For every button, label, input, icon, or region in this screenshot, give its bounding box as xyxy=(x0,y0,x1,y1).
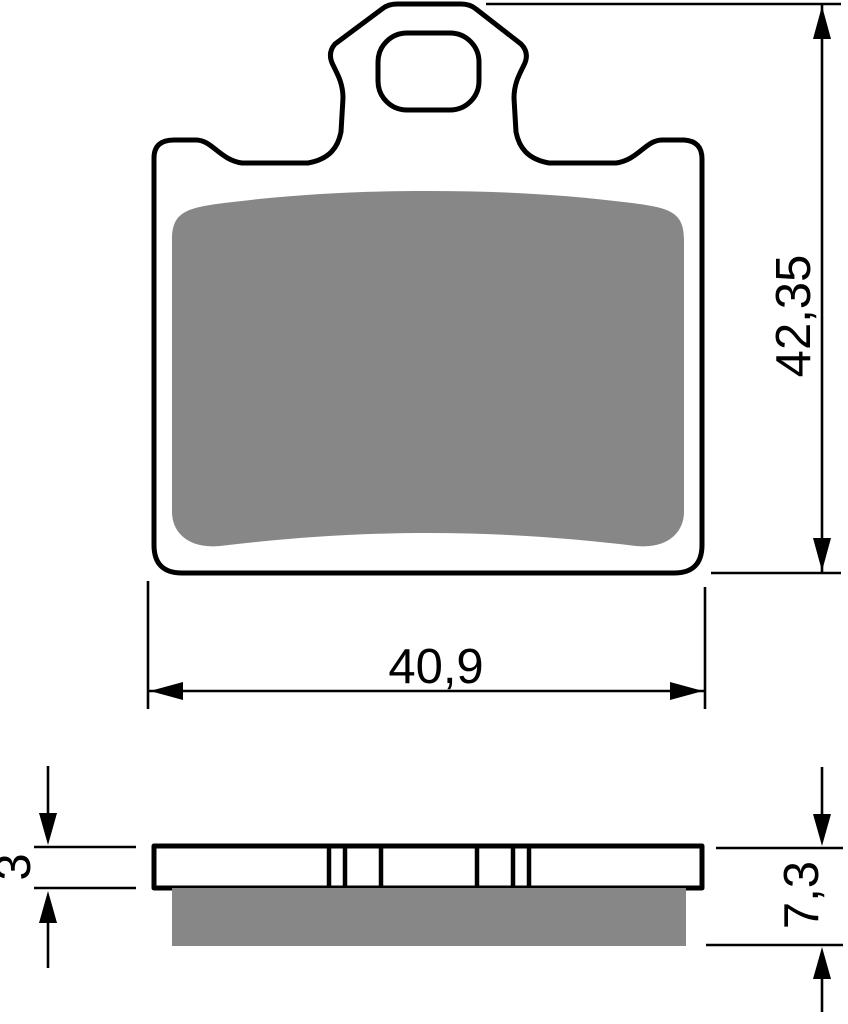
arrow-right-icon xyxy=(670,682,703,700)
dim-total-thickness-label: 7,3 xyxy=(775,861,829,929)
dim-pad-width: 40,9 xyxy=(148,581,705,709)
brake-pad-technical-drawing: 42,35 40,9 xyxy=(0,0,848,1024)
dim-backplate-thickness-label: 3 xyxy=(0,853,41,880)
front-view xyxy=(154,4,702,573)
pad-mounting-hole xyxy=(378,33,479,110)
technical-drawing-page: 42,35 40,9 xyxy=(0,0,848,1024)
dim-backplate-thickness: 3 xyxy=(0,766,136,968)
arrow-down-icon xyxy=(813,814,831,846)
dim-pad-width-label: 40,9 xyxy=(388,640,483,694)
arrow-down-icon xyxy=(39,813,57,845)
arrow-up-icon xyxy=(813,6,831,39)
side-view xyxy=(154,846,702,946)
friction-material-front xyxy=(172,191,684,546)
arrow-up-icon xyxy=(813,947,831,979)
arrow-left-icon xyxy=(150,682,183,700)
arrow-up-icon xyxy=(39,891,57,923)
backplate-side xyxy=(154,846,702,888)
friction-material-side xyxy=(172,888,686,946)
arrow-down-icon xyxy=(813,538,831,571)
dim-total-thickness: 7,3 xyxy=(706,767,843,1012)
dim-pad-height-label: 42,35 xyxy=(767,255,821,378)
